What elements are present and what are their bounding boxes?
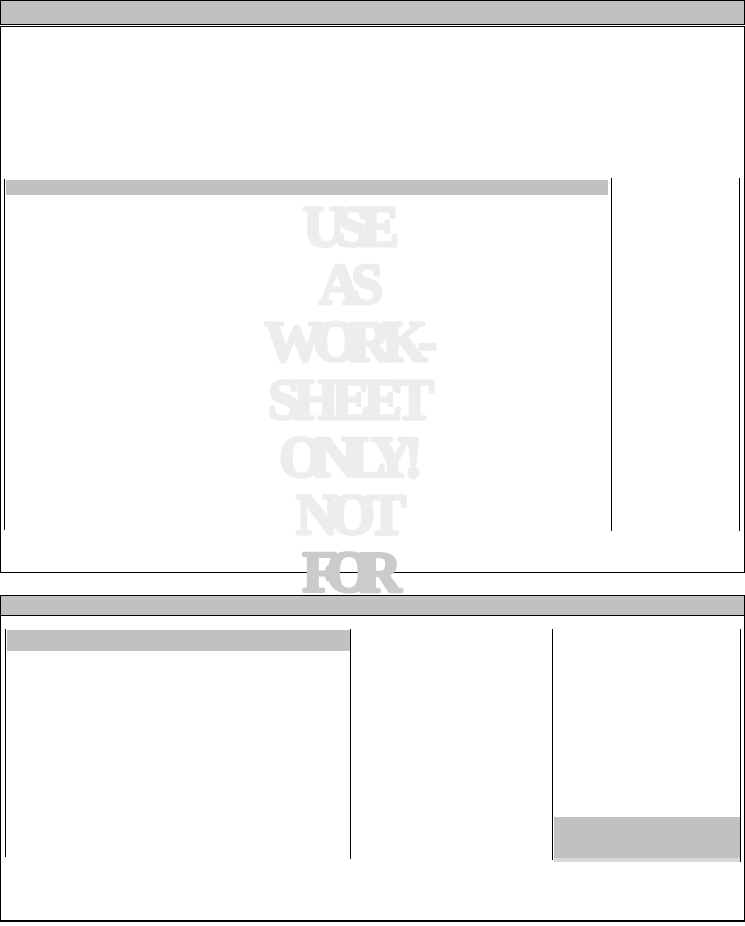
svg-text:SHEET: SHEET — [268, 367, 434, 432]
svg-text:FOR: FOR — [303, 540, 403, 605]
svg-text:NOT: NOT — [296, 482, 406, 547]
svg-text:USE: USE — [303, 194, 399, 259]
svg-text:AS: AS — [319, 252, 384, 317]
svg-text:ONLY!: ONLY! — [279, 424, 423, 489]
svg-text:WORK-: WORK- — [265, 309, 438, 374]
